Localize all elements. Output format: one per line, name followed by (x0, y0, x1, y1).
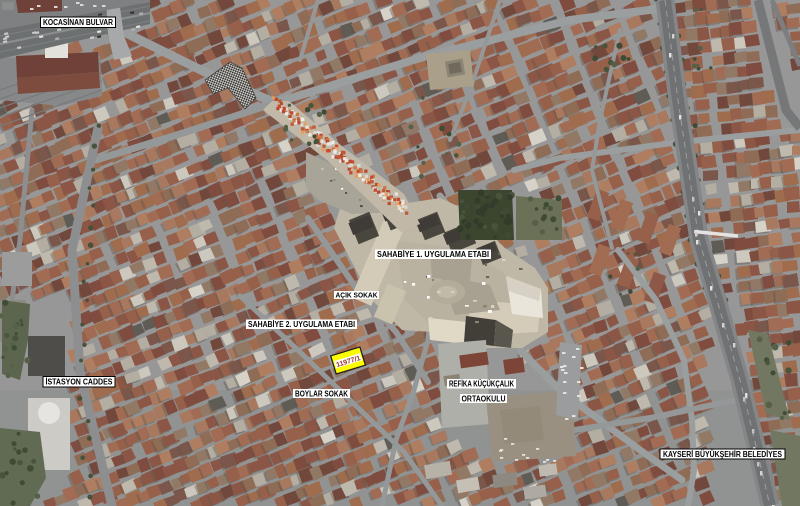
svg-text:SAHABİYE 1. UYGULAMA ETABI: SAHABİYE 1. UYGULAMA ETABI (377, 249, 489, 259)
svg-text:İSTASYON CADDES: İSTASYON CADDES (46, 378, 114, 387)
svg-text:ORTAOKULU: ORTAOKULU (462, 394, 506, 403)
svg-text:BOYLAR SOKAK: BOYLAR SOKAK (295, 389, 348, 398)
svg-text:SAHABİYE 2. UYGULAMA ETABI: SAHABİYE 2. UYGULAMA ETABI (248, 319, 355, 329)
svg-text:AÇIK SOKAK: AÇIK SOKAK (336, 291, 378, 300)
svg-text:KAYSERİ BÜYÜKŞEHİR BELEDİYES: KAYSERİ BÜYÜKŞEHİR BELEDİYES (663, 450, 783, 459)
svg-text:REFİKA KÜÇÜKÇALIK: REFİKA KÜÇÜKÇALIK (449, 380, 514, 389)
svg-text:KOCASİNAN BULVAR: KOCASİNAN BULVAR (43, 18, 113, 27)
